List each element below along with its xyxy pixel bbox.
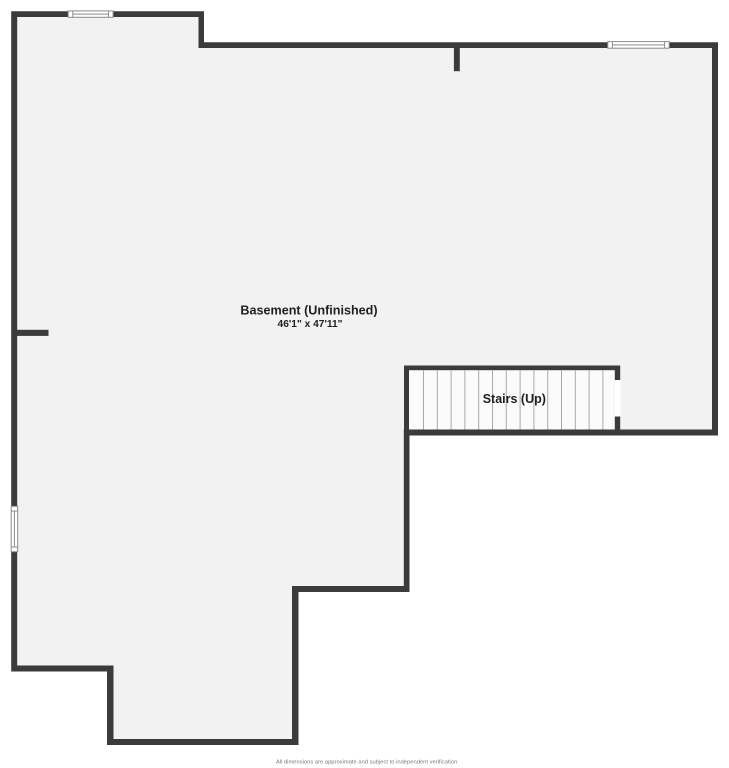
svg-text:Stairs (Up): Stairs (Up) [483,392,546,406]
svg-text:All dimensions are approximate: All dimensions are approximate and subje… [276,760,457,766]
svg-text:46'1" x 47'11": 46'1" x 47'11" [278,319,343,330]
svg-text:Basement (Unfinished): Basement (Unfinished) [240,304,377,318]
